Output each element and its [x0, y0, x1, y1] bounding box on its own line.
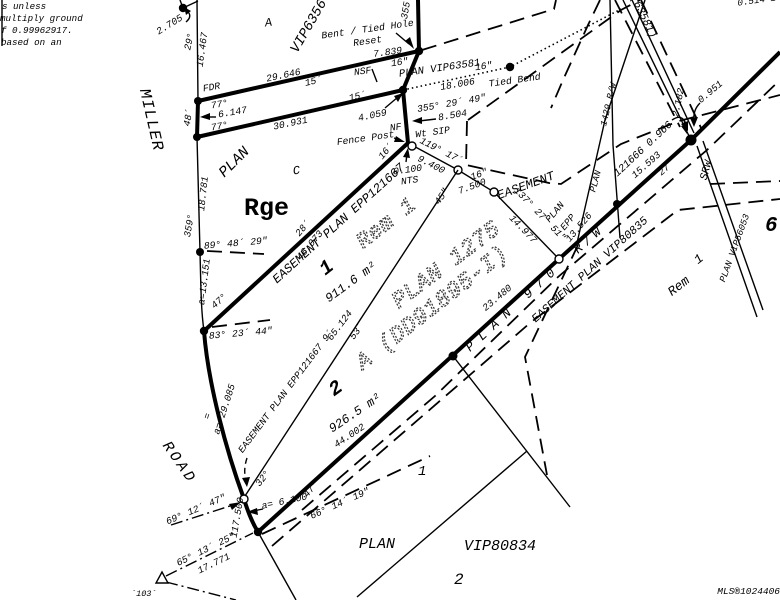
svg-text:´103´: ´103´	[131, 589, 157, 599]
svg-text:MLS®1024406: MLS®1024406	[717, 586, 780, 597]
svg-text:f 0.99962917.: f 0.99962917.	[1, 25, 73, 36]
svg-text:s unless: s unless	[2, 1, 46, 12]
svg-text:PLAN: PLAN	[359, 536, 395, 553]
svg-text:1: 1	[418, 464, 426, 480]
svg-text:6: 6	[765, 215, 778, 238]
svg-text:Rge: Rge	[244, 194, 289, 223]
svg-text:VIP80834: VIP80834	[464, 538, 536, 555]
svg-text:multiply ground: multiply ground	[0, 13, 83, 24]
svg-text:2: 2	[454, 571, 464, 589]
svg-text:based on an: based on an	[1, 37, 62, 48]
